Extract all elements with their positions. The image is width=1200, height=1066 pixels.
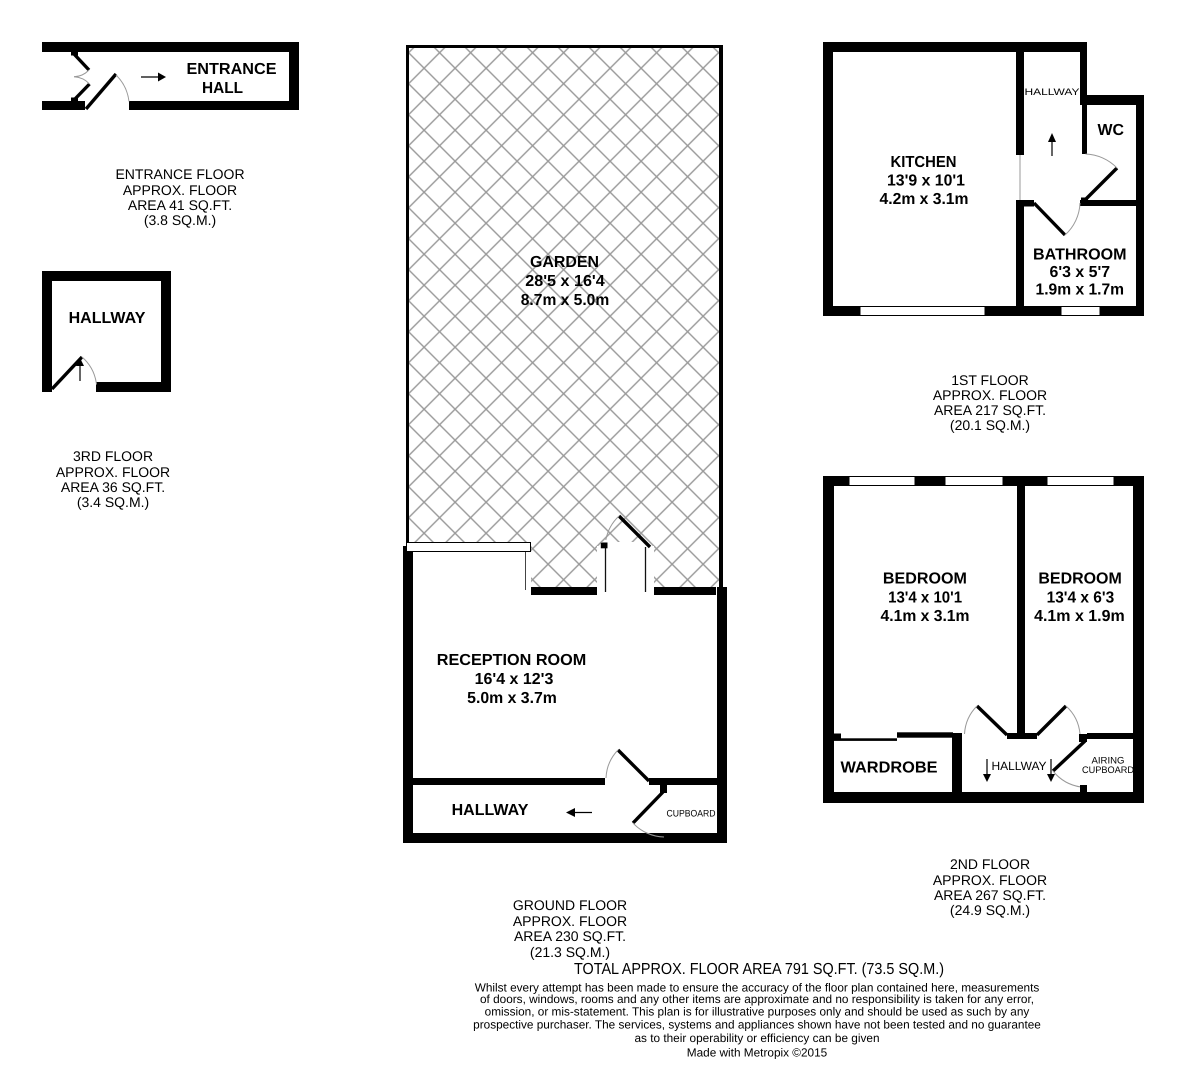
svg-text:WARDROBE: WARDROBE [841,760,938,777]
svg-text:4.1m x 1.9m: 4.1m x 1.9m [1034,608,1125,625]
svg-text:1ST FLOOR: 1ST FLOOR [951,372,1029,388]
svg-text:28'5 x 16'4: 28'5 x 16'4 [525,273,605,290]
svg-text:HALLWAY: HALLWAY [69,310,146,327]
svg-text:HALL: HALL [202,80,243,97]
svg-text:4.1m x 3.1m: 4.1m x 3.1m [881,608,970,625]
svg-text:omission, or mis-statement. Th: omission, or mis-statement. This plan is… [485,1005,1030,1019]
svg-text:APPROX. FLOOR: APPROX. FLOOR [123,182,237,198]
svg-text:AREA 230 SQ.FT.: AREA 230 SQ.FT. [514,928,626,944]
svg-text:5.0m x 3.7m: 5.0m x 3.7m [467,690,557,707]
svg-text:APPROX. FLOOR: APPROX. FLOOR [933,872,1047,888]
svg-text:3RD FLOOR: 3RD FLOOR [73,448,153,464]
svg-text:6'3 x 5'7: 6'3 x 5'7 [1050,264,1111,281]
svg-text:HALLWAY: HALLWAY [452,802,529,819]
svg-text:HALLWAY: HALLWAY [1025,87,1081,98]
svg-text:WC: WC [1098,122,1125,139]
svg-text:AREA 217 SQ.FT.: AREA 217 SQ.FT. [934,402,1046,418]
svg-text:8.7m x 5.0m: 8.7m x 5.0m [521,292,610,309]
svg-text:APPROX. FLOOR: APPROX. FLOOR [933,387,1047,403]
svg-text:BEDROOM: BEDROOM [883,571,967,588]
svg-text:as to their operability or eff: as to their operability or efficiency ca… [634,1031,879,1045]
svg-text:KITCHEN: KITCHEN [891,154,957,171]
svg-text:(20.1 SQ.M.): (20.1 SQ.M.) [950,417,1030,433]
svg-text:Made with Metropix ©2015: Made with Metropix ©2015 [687,1046,828,1060]
svg-text:(24.9 SQ.M.): (24.9 SQ.M.) [950,902,1030,918]
svg-text:ENTRANCE FLOOR: ENTRANCE FLOOR [115,166,244,182]
svg-text:ENTRANCE: ENTRANCE [187,61,277,78]
svg-text:CUPBOARD: CUPBOARD [667,809,716,820]
svg-text:AREA 36 SQ.FT.: AREA 36 SQ.FT. [61,479,165,495]
svg-text:CUPBOARD: CUPBOARD [1082,765,1134,776]
svg-text:(3.4 SQ.M.): (3.4 SQ.M.) [77,494,149,510]
svg-text:GROUND FLOOR: GROUND FLOOR [513,897,627,913]
svg-text:HALLWAY: HALLWAY [991,759,1046,773]
svg-text:4.2m x 3.1m: 4.2m x 3.1m [880,191,969,208]
svg-text:16'4 x 12'3: 16'4 x 12'3 [475,671,554,688]
svg-text:RECEPTION ROOM: RECEPTION ROOM [437,652,587,669]
svg-text:1.9m x 1.7m: 1.9m x 1.7m [1036,282,1125,299]
svg-text:prospective purchaser. The ser: prospective purchaser. The services, sys… [473,1018,1041,1032]
svg-text:TOTAL APPROX. FLOOR AREA 791 S: TOTAL APPROX. FLOOR AREA 791 SQ.FT. (73.… [574,961,944,978]
svg-text:2ND FLOOR: 2ND FLOOR [950,856,1030,872]
svg-text:AREA 41 SQ.FT.: AREA 41 SQ.FT. [128,197,232,213]
svg-text:BEDROOM: BEDROOM [1038,571,1121,588]
svg-text:(3.8 SQ.M.): (3.8 SQ.M.) [144,212,216,228]
svg-text:GARDEN: GARDEN [530,254,599,271]
svg-text:(21.3 SQ.M.): (21.3 SQ.M.) [530,944,610,960]
svg-text:APPROX. FLOOR: APPROX. FLOOR [513,913,627,929]
svg-text:13'4 x 6'3: 13'4 x 6'3 [1047,589,1115,606]
svg-text:BATHROOM: BATHROOM [1033,247,1127,264]
svg-text:APPROX. FLOOR: APPROX. FLOOR [56,464,170,480]
svg-text:13'9 x 10'1: 13'9 x 10'1 [887,173,965,190]
svg-text:13'4 x 10'1: 13'4 x 10'1 [888,589,962,606]
svg-text:AREA 267 SQ.FT.: AREA 267 SQ.FT. [934,887,1046,903]
